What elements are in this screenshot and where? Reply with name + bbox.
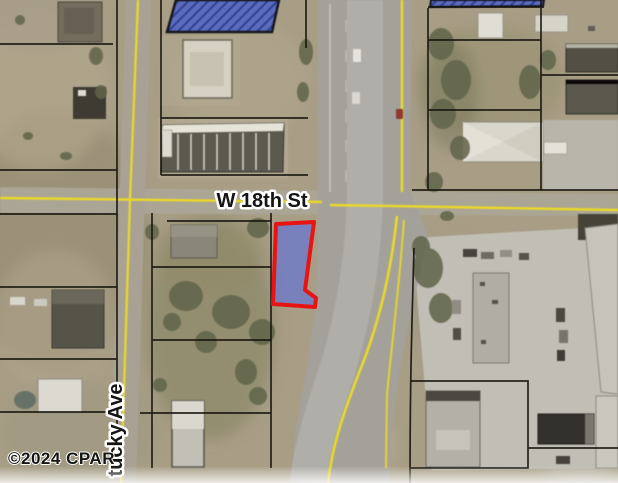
building-small-ne1: [478, 13, 503, 38]
aerial-map-canvas[interactable]: W 18th St tucky Ave ©2024 CPAR: [0, 0, 618, 483]
copyright-watermark: ©2024 CPAR: [8, 449, 115, 468]
street-label-w-18th-st: W 18th St: [216, 190, 307, 212]
highlighted-parcel[interactable]: [273, 222, 316, 307]
blue-hatched-building-top: [167, 0, 279, 32]
building-white-sw: [38, 379, 82, 413]
truck-trailer: [538, 414, 594, 444]
building-bottom-mid-left: [172, 401, 204, 467]
red-car: [396, 109, 403, 119]
bottom-fade: [0, 466, 618, 483]
building-industrial-se: [473, 273, 509, 363]
house-bottom-left: [52, 290, 104, 348]
building-storage-units: [161, 123, 284, 172]
blue-hatched-building-topright: [430, 0, 544, 7]
building-bottom-right: [596, 396, 618, 468]
building-small-ne2: [535, 15, 568, 32]
building-bottom-center: [426, 391, 480, 467]
building-gabled-white: [463, 122, 543, 162]
aerial-map-view[interactable]: W 18th St tucky Ave ©2024 CPAR: [0, 0, 618, 483]
yard-pavement-north: [543, 120, 618, 190]
white-trailer: [544, 142, 567, 154]
rv: [162, 130, 172, 157]
